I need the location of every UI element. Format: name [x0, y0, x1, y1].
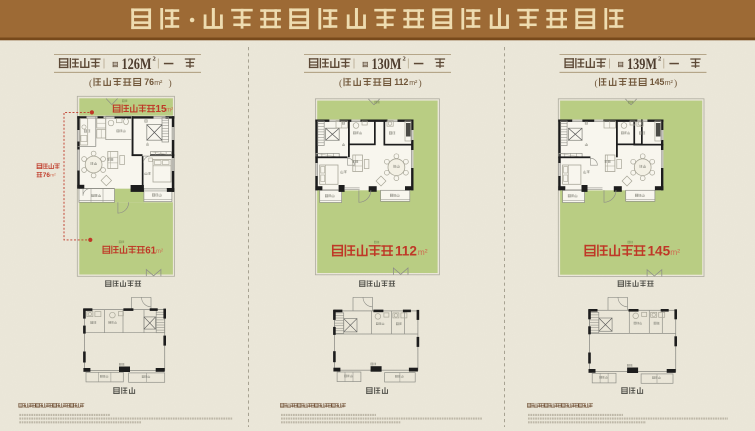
svg-text:m²: m² — [154, 80, 163, 87]
svg-text:m²: m² — [409, 80, 418, 87]
svg-text:112: 112 — [395, 244, 417, 259]
svg-text:m²: m² — [166, 107, 173, 114]
svg-text:): ) — [169, 78, 172, 89]
svg-text:m²: m² — [418, 247, 428, 257]
svg-text:): ) — [674, 78, 677, 89]
svg-text:(: ( — [89, 78, 92, 89]
svg-text:(: ( — [339, 78, 342, 89]
svg-text:m²: m² — [665, 80, 674, 87]
svg-text:(: ( — [595, 78, 598, 89]
svg-text:m²: m² — [156, 248, 163, 255]
svg-text:2: 2 — [403, 56, 406, 63]
svg-text:76: 76 — [144, 77, 154, 87]
svg-text:145: 145 — [648, 244, 671, 259]
svg-text:126M: 126M — [122, 56, 152, 73]
svg-text:m²: m² — [50, 173, 56, 179]
svg-text:145: 145 — [650, 77, 665, 87]
svg-text:130M: 130M — [372, 56, 402, 73]
svg-text:): ) — [419, 78, 422, 89]
svg-text:112: 112 — [394, 77, 408, 87]
svg-text:139M: 139M — [627, 56, 657, 73]
svg-text:2: 2 — [153, 56, 156, 63]
svg-text:m²: m² — [670, 247, 680, 257]
svg-text:2: 2 — [658, 56, 661, 63]
